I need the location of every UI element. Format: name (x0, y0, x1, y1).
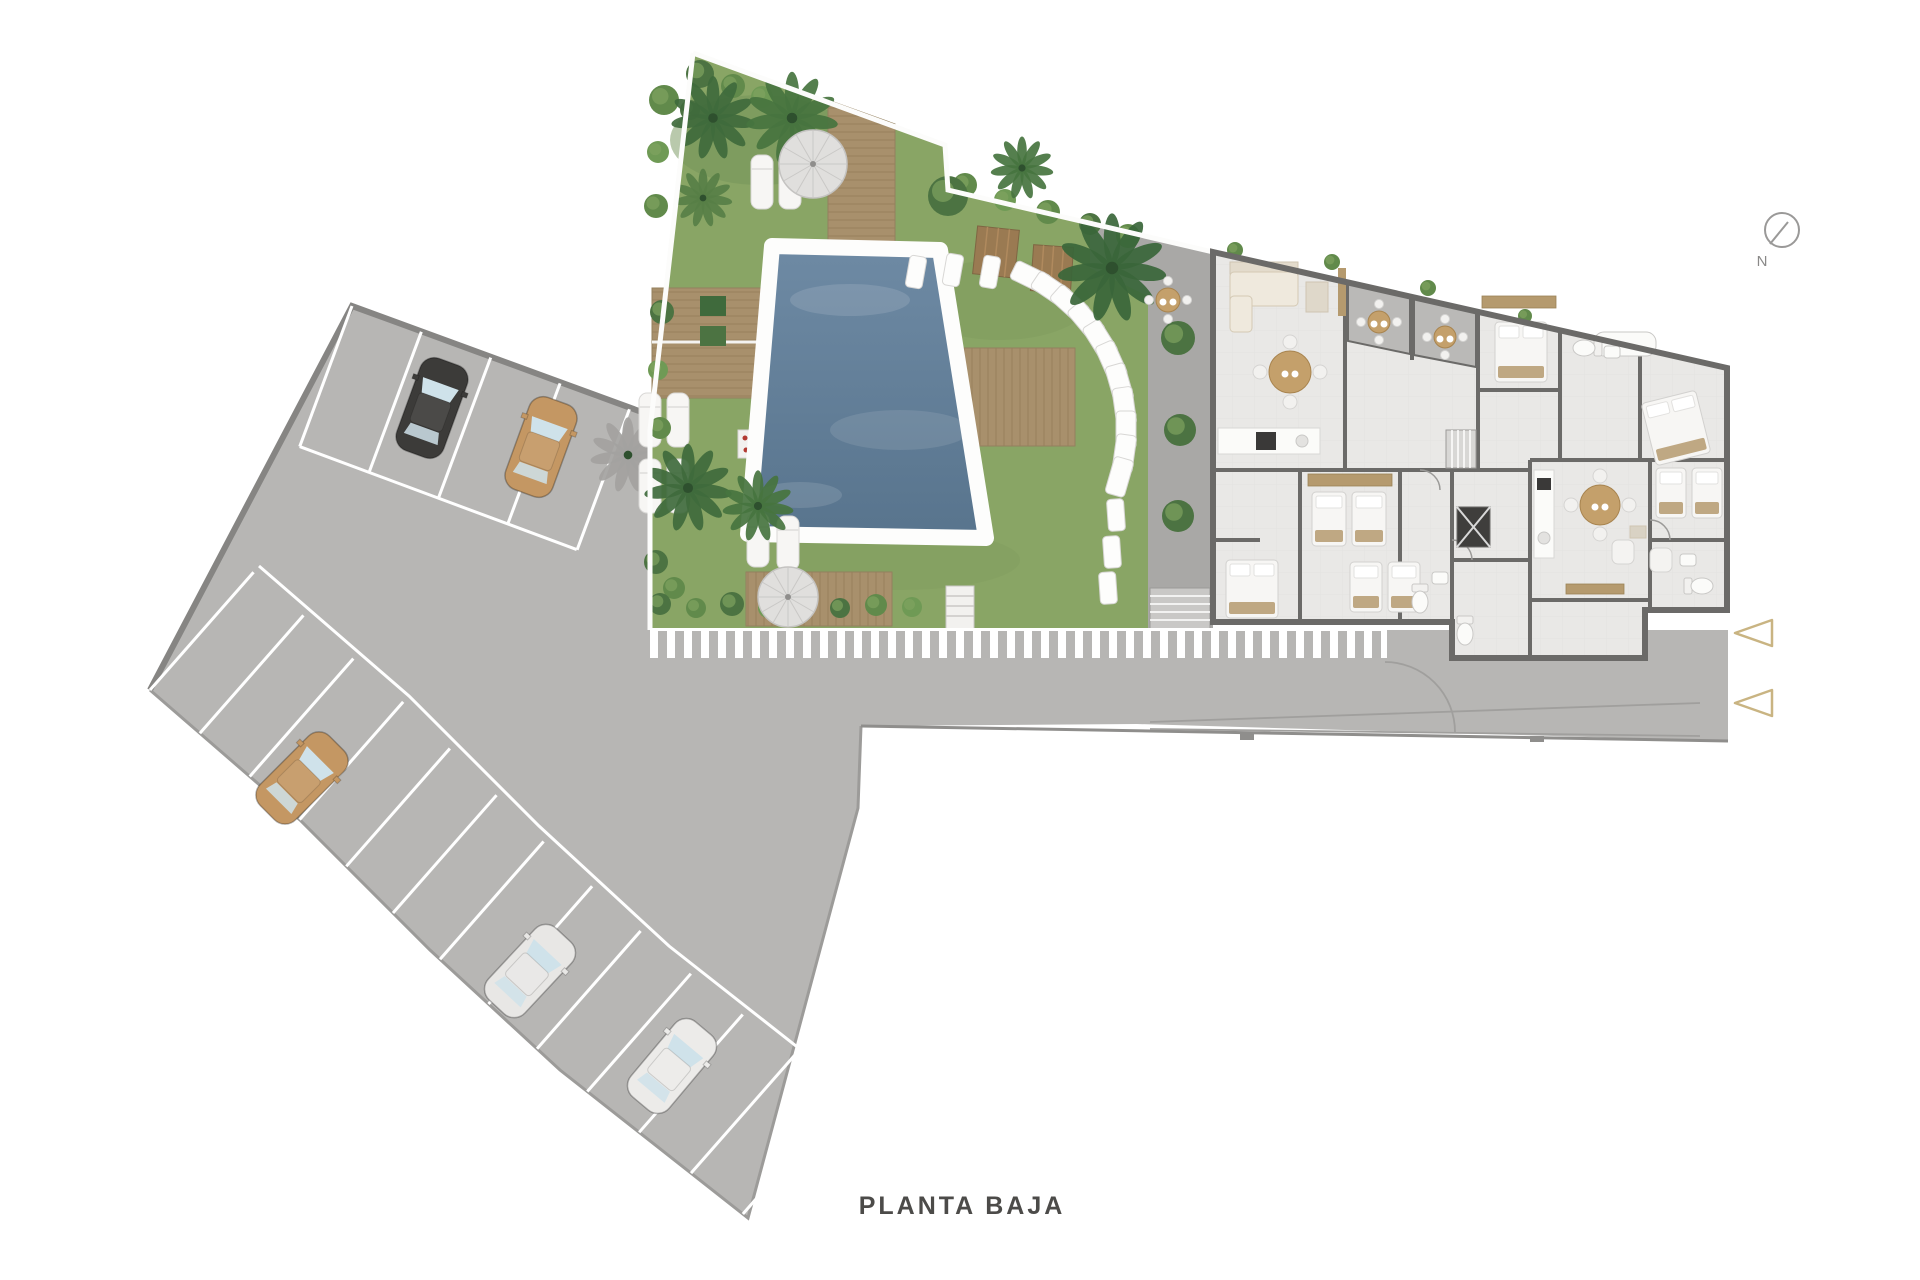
bed-pillow (1254, 564, 1274, 576)
sink (1604, 346, 1620, 358)
sun-lounger (667, 393, 689, 447)
chair (1164, 315, 1173, 324)
bed-pillow (1499, 326, 1519, 338)
bush-icon (686, 598, 706, 618)
water-highlight (790, 284, 910, 316)
bush-icon (1324, 254, 1340, 270)
bed (1350, 562, 1382, 612)
bush-highlight (832, 600, 843, 611)
site-plan: N PLANTA BAJA (0, 0, 1920, 1280)
table-setting (1447, 336, 1454, 343)
compass-north-label: N (1757, 253, 1768, 270)
bush-icon (830, 598, 850, 618)
bush-highlight (1519, 310, 1527, 318)
bush-highlight (688, 600, 699, 611)
bed (1312, 492, 1346, 546)
compass-icon: N (1757, 213, 1799, 270)
chair (1593, 469, 1607, 483)
bed-pillow (1230, 564, 1250, 576)
floor-plan-drawing: N (0, 0, 1920, 1280)
stairs (1446, 430, 1476, 468)
chair (1375, 336, 1384, 345)
palm-center (624, 451, 633, 460)
elevator (1457, 507, 1490, 547)
bush-highlight (1165, 503, 1183, 521)
bush-icon (649, 85, 679, 115)
chair (1164, 277, 1173, 286)
chair (1283, 395, 1297, 409)
bush-icon (1420, 280, 1436, 296)
stepping-stone (1102, 535, 1121, 568)
bed-blanket (1315, 530, 1343, 542)
bed-pillow (1316, 496, 1342, 508)
palm-center (754, 502, 762, 510)
bed (1692, 468, 1722, 518)
palm-center (1018, 164, 1025, 171)
toilet-bowl (1573, 340, 1595, 356)
bush-icon (902, 597, 922, 617)
bush-highlight (867, 596, 879, 608)
chair (1313, 365, 1327, 379)
chair (1393, 318, 1402, 327)
bed (1226, 560, 1278, 618)
bed-pillow (1660, 472, 1682, 484)
bed (1352, 492, 1386, 546)
entrance-arrows (1735, 620, 1772, 716)
bush-highlight (1167, 417, 1185, 435)
table-setting (1602, 504, 1609, 511)
chair (1593, 527, 1607, 541)
apartment-building (1145, 245, 1736, 665)
chair (1375, 300, 1384, 309)
kitchen-counter (1218, 428, 1320, 454)
bed-pillow (1354, 566, 1378, 578)
bed-pillow (1696, 472, 1718, 484)
stepping-stone (1098, 571, 1117, 604)
toilet-bowl (1457, 623, 1473, 645)
table-top (1269, 351, 1311, 393)
chair (1622, 498, 1636, 512)
bush-icon (647, 141, 669, 163)
palm-tree-icon (990, 137, 1054, 200)
entrance-arrow-icon (1735, 690, 1772, 716)
chair (1253, 365, 1267, 379)
chair (1357, 318, 1366, 327)
toilet (1457, 616, 1473, 645)
parasol-pole (785, 594, 791, 600)
chair (1183, 296, 1192, 305)
table-setting (1371, 321, 1378, 328)
sink (1680, 554, 1696, 566)
chair (1441, 351, 1450, 360)
bush-icon (720, 592, 744, 616)
hatched-walkway (650, 628, 1387, 658)
bed-blanket (1353, 596, 1379, 608)
chair (1564, 498, 1578, 512)
path-stairs (1150, 588, 1210, 630)
table-setting (1282, 371, 1289, 378)
bed-pillow (1356, 496, 1382, 508)
garden-steps (946, 586, 974, 630)
table-setting (1437, 336, 1444, 343)
wood-deck (963, 348, 1075, 446)
bush-highlight (904, 599, 915, 610)
bush-highlight (1326, 256, 1335, 265)
bush-highlight (646, 196, 659, 209)
bed-blanket (1659, 502, 1683, 514)
plan-title: PLANTA BAJA (859, 1192, 1066, 1221)
lounger-body (667, 393, 689, 447)
toilet (1412, 584, 1428, 613)
bed-blanket (1355, 530, 1383, 542)
bush-highlight (722, 594, 735, 607)
table-top (1580, 485, 1620, 525)
palm-center (787, 113, 798, 124)
bed (1495, 322, 1547, 382)
bush-icon (865, 594, 887, 616)
toilet-bowl (1412, 591, 1428, 613)
table-setting (1160, 299, 1167, 306)
bush-icon (1164, 414, 1196, 446)
planter (700, 296, 726, 316)
water-highlight (830, 410, 970, 450)
bed-blanket (1229, 602, 1275, 614)
chair (1459, 333, 1468, 342)
bush-highlight (1229, 244, 1238, 253)
bush-highlight (1164, 324, 1183, 343)
bed-pillow (1392, 566, 1416, 578)
sun-lounger (751, 155, 773, 209)
bed (1656, 468, 1686, 518)
bush-highlight (1422, 282, 1431, 291)
chair (1283, 335, 1297, 349)
tv-cabinet (1338, 268, 1346, 316)
toilet-bowl (1691, 578, 1713, 594)
bush-highlight (652, 88, 669, 105)
bed-blanket (1498, 366, 1544, 378)
parasol-icon (779, 130, 847, 198)
chair (1441, 315, 1450, 324)
kitchen-counter (1534, 470, 1554, 558)
table-setting (1292, 371, 1299, 378)
table-setting (1381, 321, 1388, 328)
table-top (1156, 288, 1180, 312)
entrance-arrow-icon (1735, 620, 1772, 646)
chair (1423, 333, 1432, 342)
toilet (1573, 340, 1602, 356)
parasol-pole (810, 161, 816, 167)
table-setting (1170, 299, 1177, 306)
bush-icon (644, 194, 668, 218)
palm-center (708, 113, 718, 123)
planter (700, 326, 726, 346)
bed-blanket (1695, 502, 1719, 514)
palm-center (683, 483, 693, 493)
sink (1432, 572, 1448, 584)
table-setting (1592, 504, 1599, 511)
bush-icon (1161, 321, 1195, 355)
bush-highlight (649, 143, 661, 155)
bush-icon (1162, 500, 1194, 532)
palm-center (1106, 262, 1118, 274)
parasol-icon (758, 567, 818, 627)
lounger-body (751, 155, 773, 209)
stepping-stone (1106, 498, 1125, 531)
chair (1145, 296, 1154, 305)
bush-highlight (665, 579, 677, 591)
coffee-table (1306, 282, 1328, 312)
toilet (1684, 578, 1713, 594)
bush-highlight (651, 595, 663, 607)
palm-center (700, 195, 707, 202)
